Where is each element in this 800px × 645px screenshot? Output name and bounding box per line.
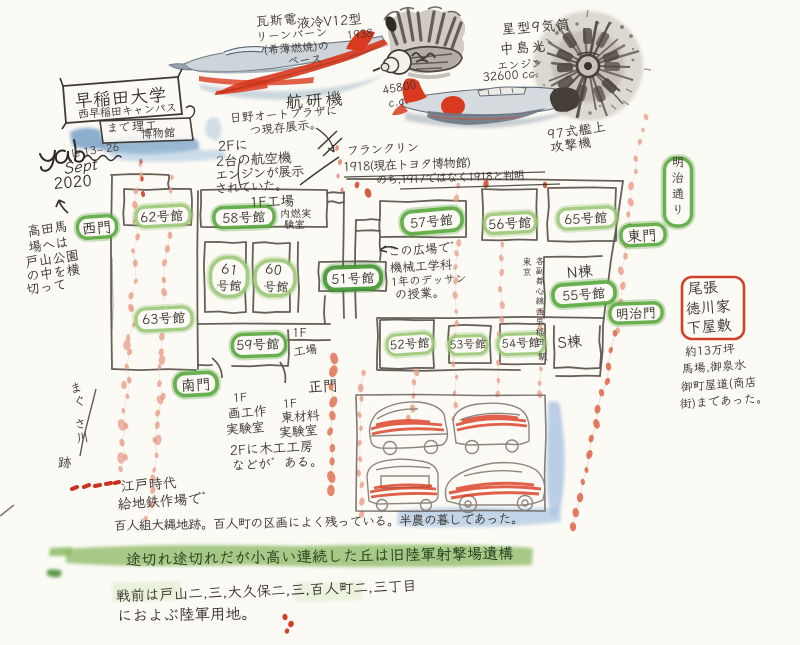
svg-text:におよぶ陸軍用地。: におよぶ陸軍用地。 [117, 602, 257, 626]
svg-text:実験室: 実験室 [225, 416, 265, 438]
svg-text:55号館: 55号館 [561, 281, 606, 304]
svg-text:53号館: 53号館 [449, 335, 487, 352]
svg-text:号館: 号館 [216, 275, 242, 294]
svg-text:1F: 1F [292, 324, 306, 341]
svg-text:63号館: 63号館 [142, 306, 187, 328]
svg-text:52号館: 52号館 [389, 332, 431, 354]
svg-text:明治門: 明治門 [615, 301, 656, 322]
svg-text:ベース: ベース [287, 51, 323, 69]
svg-text:の授業。: の授業。 [394, 281, 445, 303]
svg-text:54号館: 54号館 [501, 333, 540, 351]
svg-text:駅: 駅 [538, 349, 548, 363]
svg-text:56号館: 56号館 [488, 211, 533, 233]
svg-text:南門: 南門 [180, 373, 211, 396]
svg-text:59号館: 59号館 [236, 332, 280, 354]
svg-text:号館: 号館 [263, 276, 289, 295]
svg-text:東門: 東門 [626, 224, 657, 247]
svg-text:博物館: 博物館 [140, 124, 176, 142]
svg-text:跡: 跡 [58, 451, 72, 471]
svg-text:51号館: 51号館 [331, 266, 375, 288]
svg-text:62号館: 62号館 [140, 204, 185, 226]
svg-text:57号館: 57号館 [409, 208, 454, 232]
svg-text:工場: 工場 [292, 340, 318, 360]
svg-text:2020: 2020 [52, 167, 92, 194]
svg-text:まで: まで [106, 119, 130, 136]
svg-text:N棟: N棟 [566, 260, 594, 283]
svg-text:1938: 1938 [346, 24, 374, 43]
svg-text:西門: 西門 [81, 216, 112, 239]
svg-text:正門: 正門 [307, 374, 338, 397]
svg-text:S棟: S棟 [557, 330, 583, 353]
svg-text:されていた。: されていた。 [214, 174, 287, 197]
svg-text:京: 京 [522, 265, 532, 279]
svg-text:り: り [672, 199, 685, 218]
svg-text:験室: 験室 [284, 217, 305, 232]
svg-text:65号館: 65号館 [564, 206, 609, 228]
svg-text:下屋敷: 下屋敷 [686, 314, 732, 338]
svg-text:田: 田 [535, 335, 544, 348]
